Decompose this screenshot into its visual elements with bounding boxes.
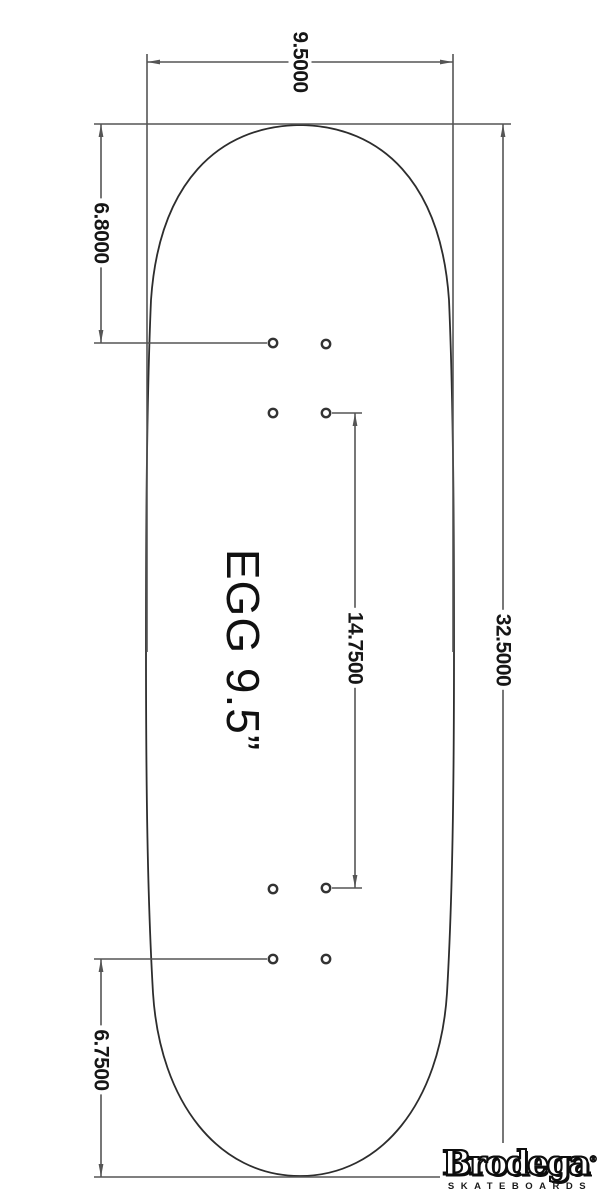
- dimension-length-label: 32.5000: [492, 610, 515, 690]
- deck-outline: [146, 125, 454, 1176]
- technical-drawing: 9.5000 6.8000 32.5000 14.7500 6.7500 EGG…: [0, 0, 600, 1200]
- brand-logo: Brodega® SKATEBOARDS: [440, 1143, 600, 1200]
- mounting-holes: [269, 339, 330, 963]
- brand-logo-subtitle: SKATEBOARDS: [440, 1181, 600, 1192]
- dimension-arrows: [99, 60, 506, 1177]
- dimension-nose-label: 6.8000: [90, 198, 113, 267]
- deck-name-label: EGG 9.5”: [220, 549, 266, 751]
- dimension-width-label: 9.5000: [289, 27, 312, 96]
- deck-dimension-drawing: [0, 0, 600, 1200]
- brand-name: Brodega: [442, 1143, 589, 1183]
- dimension-tail-label: 6.7500: [90, 1025, 113, 1094]
- brand-logo-wordmark: Brodega®: [440, 1143, 600, 1180]
- dimension-lines: [94, 54, 511, 1177]
- registered-trademark-icon: ®: [589, 1155, 598, 1165]
- dimension-wheelbase-label: 14.7500: [344, 608, 367, 688]
